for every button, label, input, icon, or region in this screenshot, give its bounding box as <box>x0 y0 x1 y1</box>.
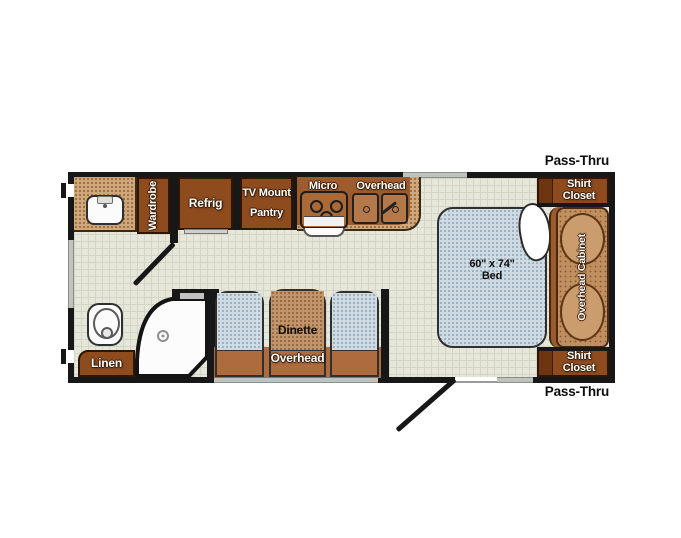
bathroom-wall <box>170 177 178 243</box>
linen-cabinet: Linen <box>78 350 135 377</box>
bed-label-box: 60" x 74" Bed <box>437 258 547 282</box>
closet-bottom-edge <box>537 347 609 351</box>
wardrobe-cabinet: Wardrobe <box>137 177 170 234</box>
dinette-label: Dinette <box>269 323 326 337</box>
kitchen-sink-left <box>352 193 379 224</box>
shirt-closet-bottom-label: Shirt Closet <box>552 351 606 375</box>
bathroom-faucet <box>97 196 113 204</box>
entry-door-opening <box>455 377 497 383</box>
bed-size-label: 60" x 74" <box>437 258 547 270</box>
closet-door-strip <box>539 179 553 203</box>
overhead-cabinet-label-box: Overhead Cabinet <box>556 207 609 348</box>
closet-door-strip <box>539 351 553 375</box>
wall-right <box>609 172 615 383</box>
wall-divider-refrig <box>233 177 240 230</box>
sink-drain-icon <box>363 206 370 213</box>
cooktop-front <box>304 216 344 226</box>
linen-label: Linen <box>91 357 122 370</box>
pantry-label: Pantry <box>250 208 283 220</box>
pass-thru-bottom-label: Pass-Thru <box>502 384 609 398</box>
cooktop <box>300 191 348 229</box>
shower-wall-inset <box>180 293 204 299</box>
dinette-overhead-label-box: Overhead <box>269 351 326 365</box>
burner-icon <box>330 200 343 213</box>
bench-cushion <box>217 293 262 351</box>
window-left <box>68 240 74 308</box>
shirt-closet-bottom: Shirt Closet <box>537 349 609 377</box>
bathroom-sink-drain <box>103 204 107 208</box>
dinette-bench-left <box>215 291 264 377</box>
floorplan-canvas: Wardrobe Refrig TV Mount Pantry Micro Ov… <box>0 0 681 538</box>
refrig-label: Refrig <box>189 197 222 210</box>
refrigerator: Refrig <box>178 177 233 230</box>
kitchen-overhead-label-box: Overhead <box>352 180 410 193</box>
closet-top-edge <box>537 203 609 207</box>
kitchen-overhead-label: Overhead <box>356 181 405 193</box>
table-top <box>271 291 324 351</box>
left-window-frame-bottom <box>61 349 66 364</box>
left-wall-gap-bottom <box>68 350 74 363</box>
sink-drain-icon <box>392 206 399 213</box>
toilet-flush <box>101 327 113 339</box>
pantry-cabinet: TV Mount Pantry <box>240 177 293 230</box>
bed-label: Bed <box>437 270 547 282</box>
pass-thru-top-label: Pass-Thru <box>502 153 609 167</box>
refrig-vent <box>184 229 228 234</box>
dinette-overhead-label: Overhead <box>271 352 325 365</box>
tv-mount-label: TV Mount <box>242 188 291 200</box>
left-window-frame-top <box>61 183 66 198</box>
dinette-bench-right <box>330 291 379 377</box>
wardrobe-label: Wardrobe <box>148 181 160 230</box>
overhead-cabinet-label: Overhead Cabinet <box>577 234 588 321</box>
dinette-right-wall <box>381 289 389 378</box>
toilet <box>87 303 123 346</box>
entry-door <box>396 378 457 433</box>
cooktop-bump <box>303 228 345 237</box>
shirt-closet-top: Shirt Closet <box>537 177 609 205</box>
window-bottom-entry <box>497 377 533 383</box>
bench-cushion <box>332 293 377 351</box>
burner-icon <box>310 200 323 213</box>
shirt-closet-top-label: Shirt Closet <box>552 179 606 203</box>
